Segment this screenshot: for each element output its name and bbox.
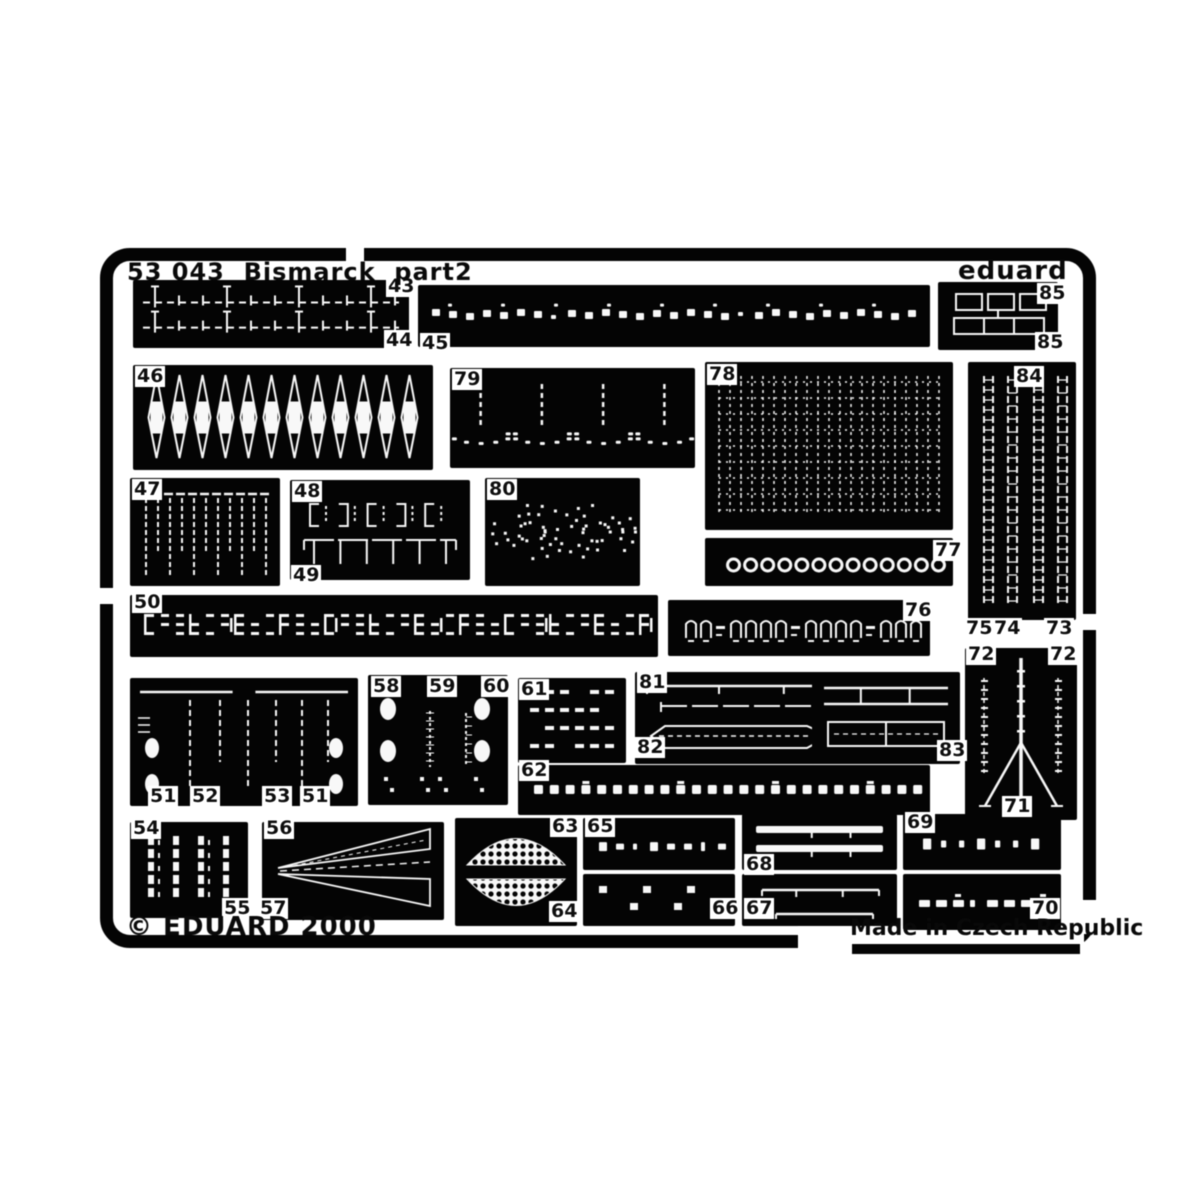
part-number-label-83: 83 [937,740,967,761]
part-number-label-68: 68 [744,854,774,875]
photoetch-fret-photo: 4344458585467978844748498077507651525351… [0,0,1200,1200]
pe-part-76 [668,600,930,656]
part-number-label-78: 78 [707,364,737,385]
part-number-label-80: 80 [487,479,517,500]
part-number-label-45: 45 [420,333,450,354]
pe-part-77 [705,538,953,586]
part-number-label-58: 58 [371,676,401,697]
part-number-label-79: 79 [452,369,482,390]
part-number-label-84: 84 [1014,366,1044,387]
part-number-label-61: 61 [519,679,549,700]
pe-part-62 [518,765,930,815]
part-number-label-44: 44 [384,330,414,351]
part-number-label-51: 51 [300,786,330,807]
part-number-label-60: 60 [481,676,511,697]
part-number-label-53: 53 [262,786,292,807]
copyright-text: © EDUARD 2000 [126,912,377,942]
part-number-label-63: 63 [550,816,580,837]
part-number-label-76: 76 [903,600,933,621]
photoetch-fret: 4344458585467978844748498077507651525351… [0,0,1200,1200]
pe-part-84 [968,362,1076,620]
pe-part-46 [133,365,433,470]
part-number-label-64: 64 [549,901,579,922]
pe-part-50 [130,595,658,657]
part-number-label-72: 72 [966,644,996,665]
part-number-label-85: 85 [1035,332,1065,353]
part-number-label-85: 85 [1037,283,1067,304]
pe-part-79 [450,368,695,468]
part-number-label-72: 72 [1048,644,1078,665]
part-number-label-66: 66 [710,898,740,919]
part-number-label-81: 81 [637,672,667,693]
part-number-label-49: 49 [291,565,321,586]
pe-part-45 [418,285,930,347]
part-number-label-54: 54 [131,818,161,839]
made-in-text: Made in Czech Republic [850,916,1143,941]
part-number-label-47: 47 [132,479,162,500]
set-title: 53 043 Bismarck part2 [127,258,473,286]
part-number-label-74: 74 [992,618,1022,639]
part-number-label-56: 56 [264,818,294,839]
pe-part-78 [705,362,953,530]
part-number-label-46: 46 [135,366,165,387]
eduard-logo: eduard [958,256,1068,286]
part-number-label-50: 50 [132,592,162,613]
part-number-label-71: 71 [1002,796,1032,817]
pe-part-43-44 [133,280,409,348]
frame-bottom-bar [852,944,1080,954]
part-number-label-48: 48 [292,481,322,502]
part-number-label-67: 67 [744,898,774,919]
part-number-label-59: 59 [427,676,457,697]
part-number-label-69: 69 [905,812,935,833]
part-number-label-75: 75 [964,618,994,639]
part-number-label-62: 62 [519,760,549,781]
frame-notch [1080,614,1102,630]
part-number-label-65: 65 [585,816,615,837]
frame-notch [94,588,118,604]
part-number-label-52: 52 [190,786,220,807]
part-number-label-77: 77 [933,540,963,561]
part-number-label-82: 82 [635,737,665,758]
part-number-label-73: 73 [1044,618,1074,639]
part-number-label-51: 51 [148,786,178,807]
